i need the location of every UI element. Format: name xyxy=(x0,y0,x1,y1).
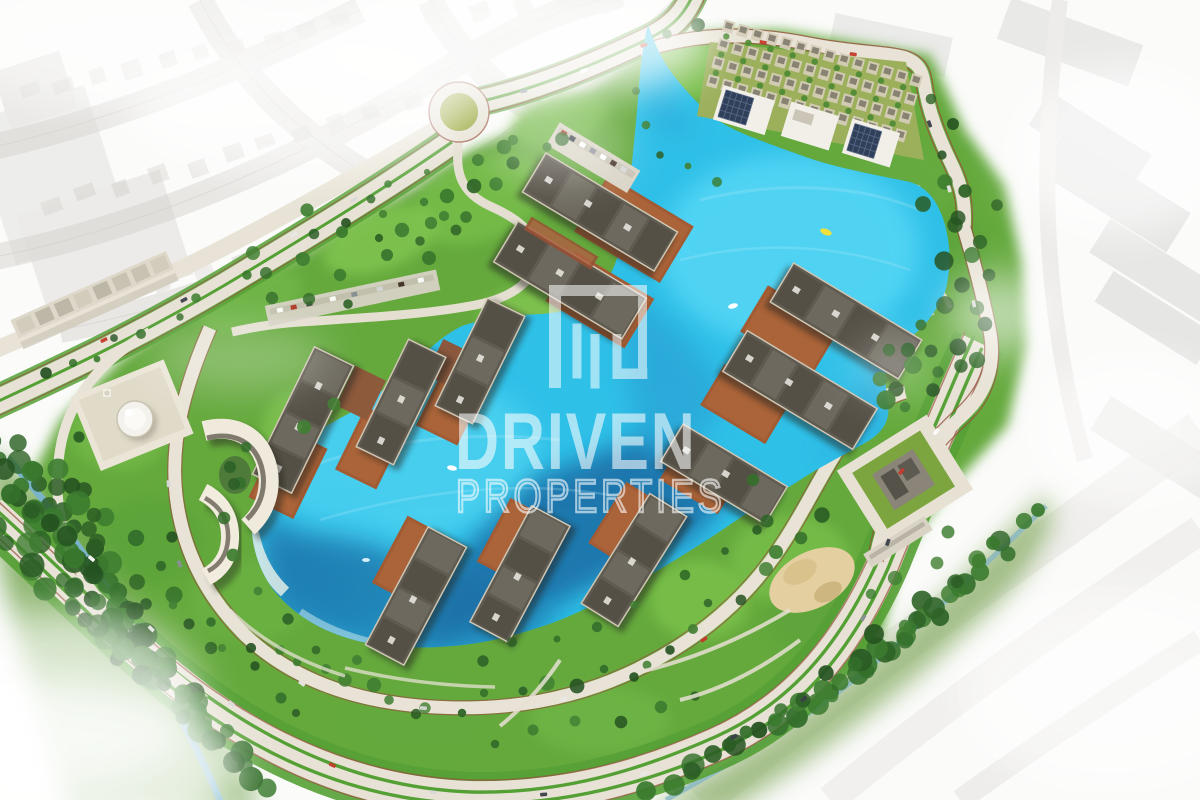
svg-text:PROPERTIES: PROPERTIES xyxy=(456,471,726,522)
